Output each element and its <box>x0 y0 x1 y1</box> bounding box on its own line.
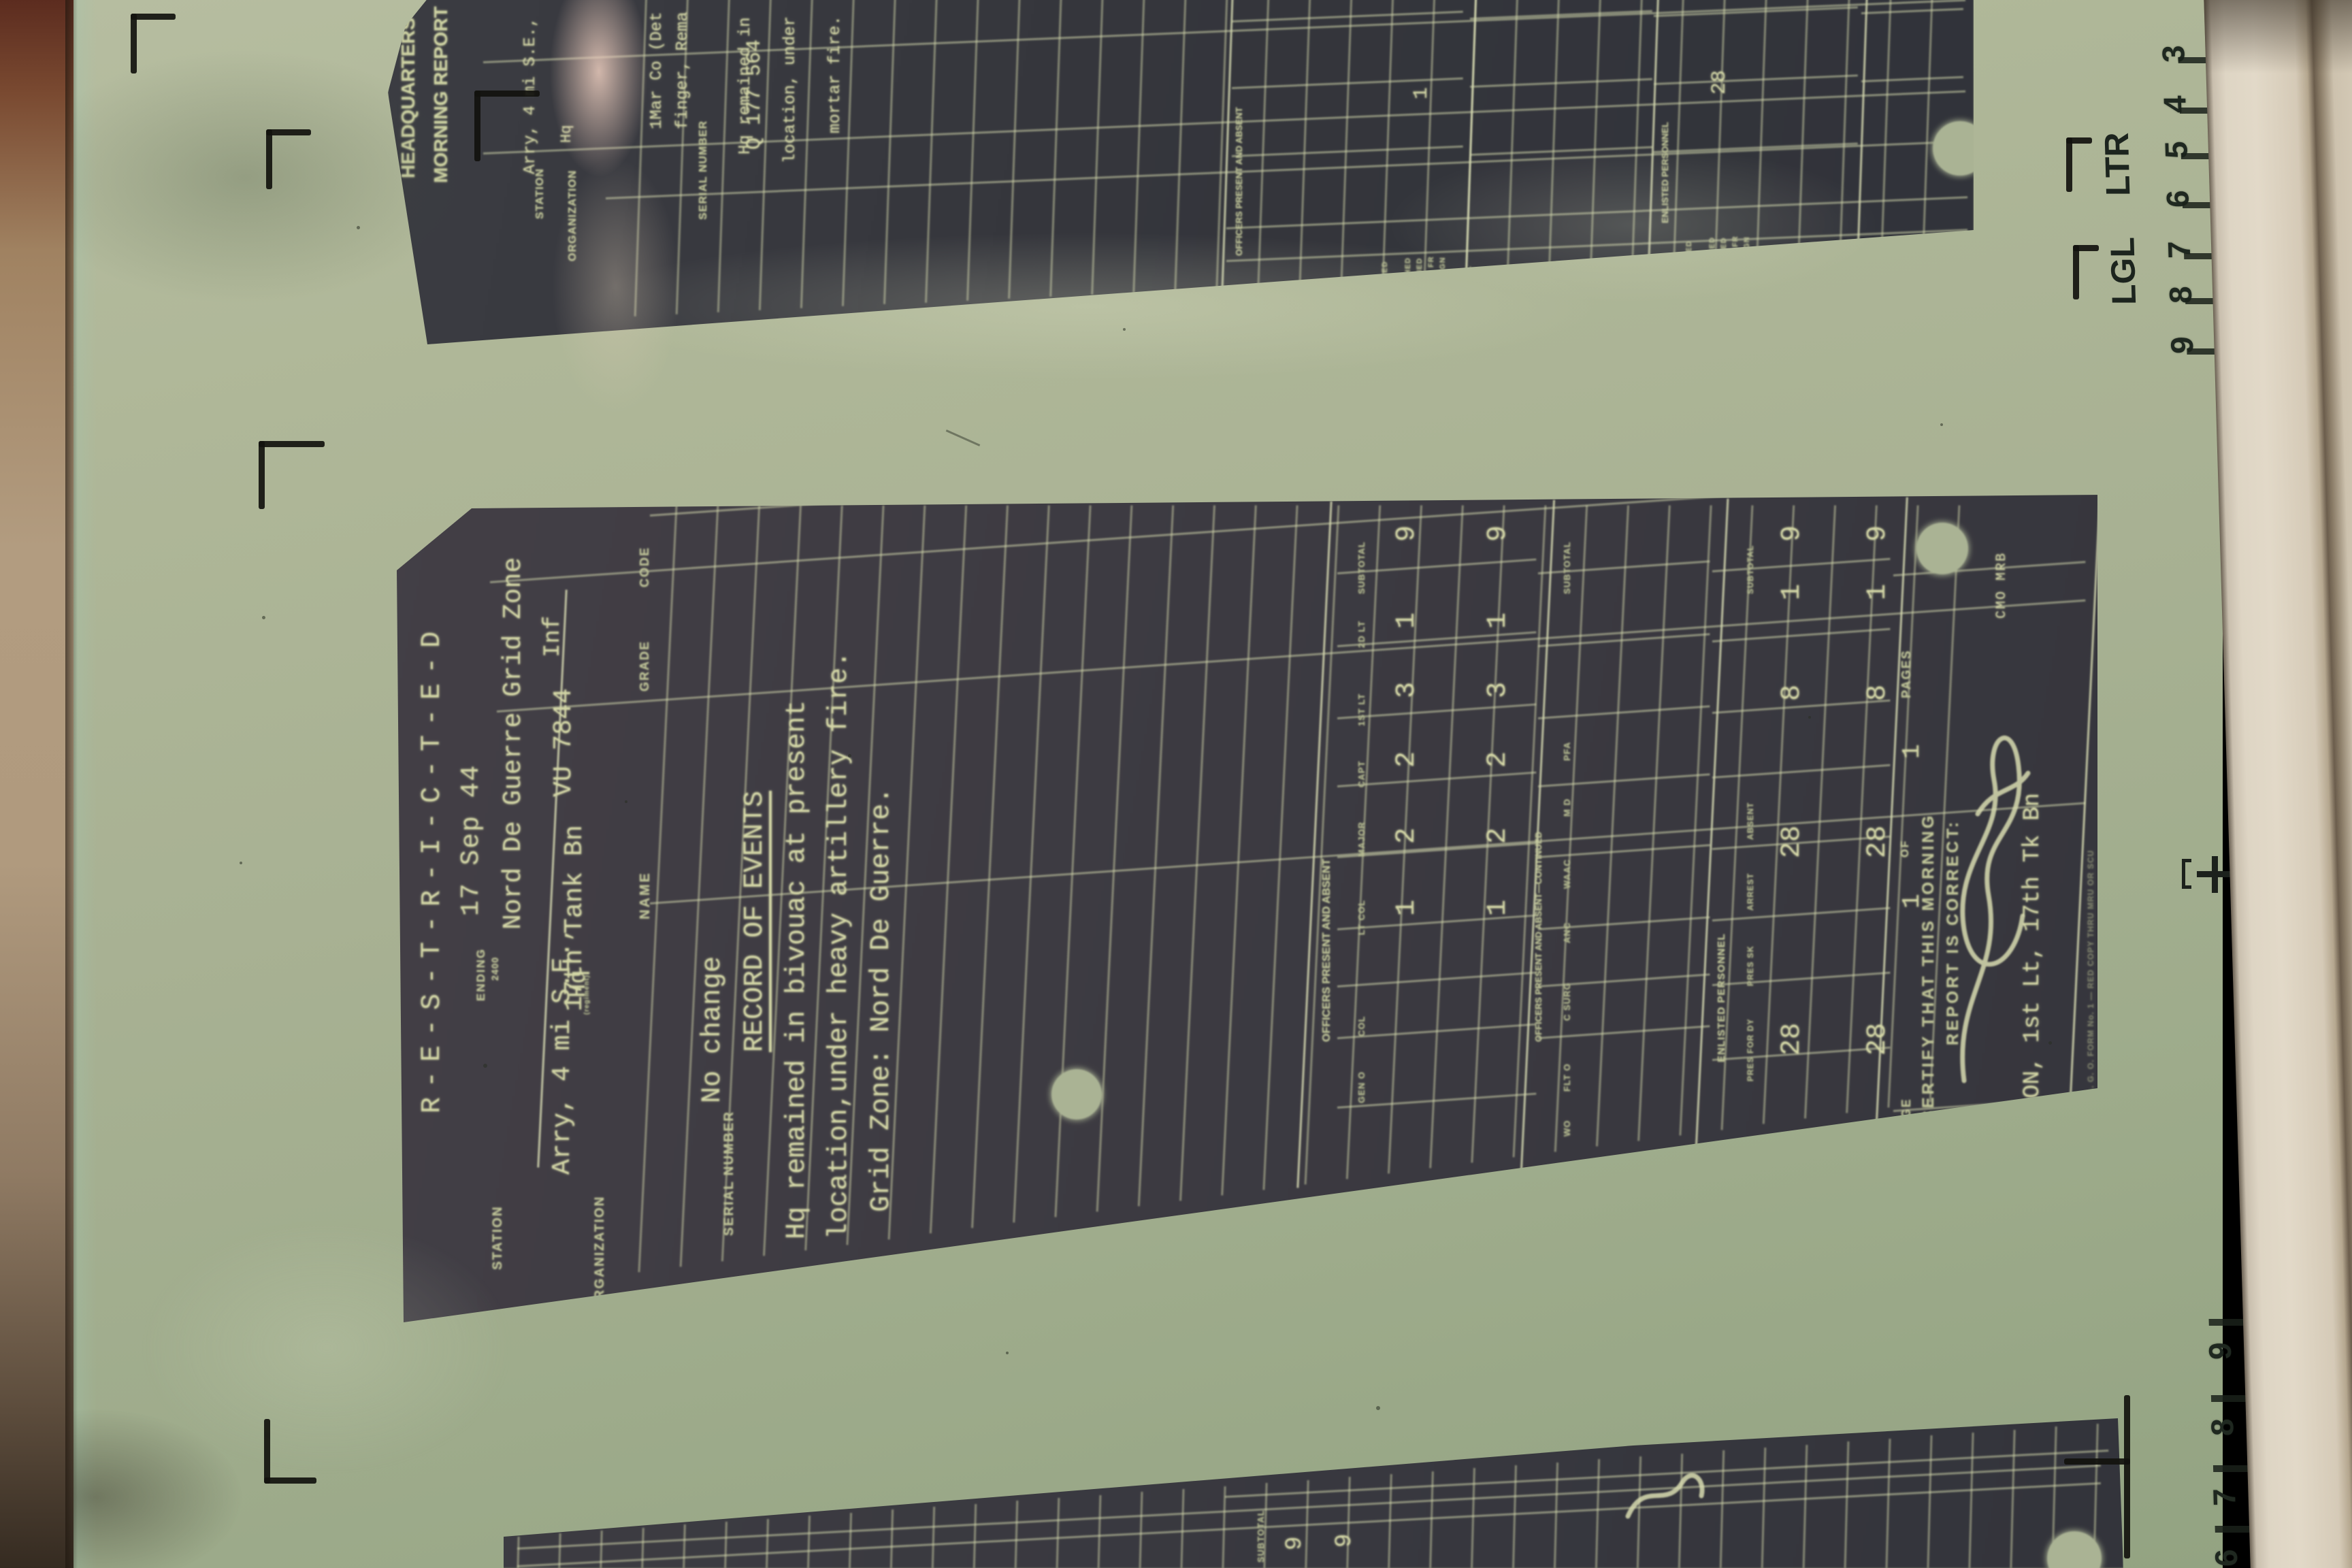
record-fragment-4: location, under <box>783 0 799 163</box>
grid-value: 1 <box>1411 56 1432 99</box>
column-rule-line <box>1654 74 1858 85</box>
dust-speck <box>1006 1352 1009 1354</box>
record-fragment-3: Hq remained in <box>738 0 754 154</box>
ruler-number-9: 9 <box>2166 313 2198 354</box>
dust-speck <box>1808 716 1811 719</box>
corner-bracket <box>266 129 311 135</box>
reflection-blob <box>0 0 551 354</box>
dust-speck <box>1123 328 1126 331</box>
microfilm-reader-photo: HEADQUARTERSMORNING REPORTArry, 4 mi S.E… <box>0 0 2352 1568</box>
dust-speck <box>1940 423 1943 426</box>
frame-top-shade <box>2204 0 2352 73</box>
corner-bracket <box>266 129 272 189</box>
dust-speck <box>483 1064 487 1068</box>
ruler-number-5: 5 <box>2159 118 2192 159</box>
dust-speck <box>262 616 265 619</box>
corner-bracket <box>259 441 325 447</box>
corner-bracket <box>131 14 137 73</box>
reader-frame-left-seam <box>65 0 78 1568</box>
dust-speck <box>625 800 627 803</box>
reflection-blob <box>1293 116 1974 333</box>
dust-speck <box>240 862 242 864</box>
corner-bracket <box>474 91 540 97</box>
corner-bracket <box>131 14 176 20</box>
dust-speck <box>848 754 851 757</box>
record-fragment-5: mortar fire. <box>828 0 844 133</box>
column-rule-line <box>1861 76 1963 82</box>
ruler-number-4: 4 <box>2158 72 2191 113</box>
corner-bracket <box>264 1477 316 1484</box>
reader-frame-left <box>0 0 73 1568</box>
ruler-number-3: 3 <box>2157 22 2189 63</box>
dust-speck <box>357 226 360 229</box>
film-size-label-ltr: LTR <box>2100 133 2136 196</box>
corner-bracket <box>259 441 265 509</box>
column-rule-line <box>1470 78 1652 88</box>
corner-bracket <box>264 1419 270 1484</box>
film-size-label-lgl: LGL <box>2106 242 2142 305</box>
grid-value: 28 <box>1710 30 1730 95</box>
dust-speck <box>1376 1406 1380 1410</box>
ruler-number-6: 6 <box>2161 167 2193 208</box>
corner-bracket <box>474 91 480 161</box>
ruler-number-7: 7 <box>2162 218 2195 259</box>
ruler-number-8: 8 <box>2163 263 2196 304</box>
dust-speck <box>2048 1041 2052 1045</box>
column-rule-line <box>1861 8 1963 14</box>
